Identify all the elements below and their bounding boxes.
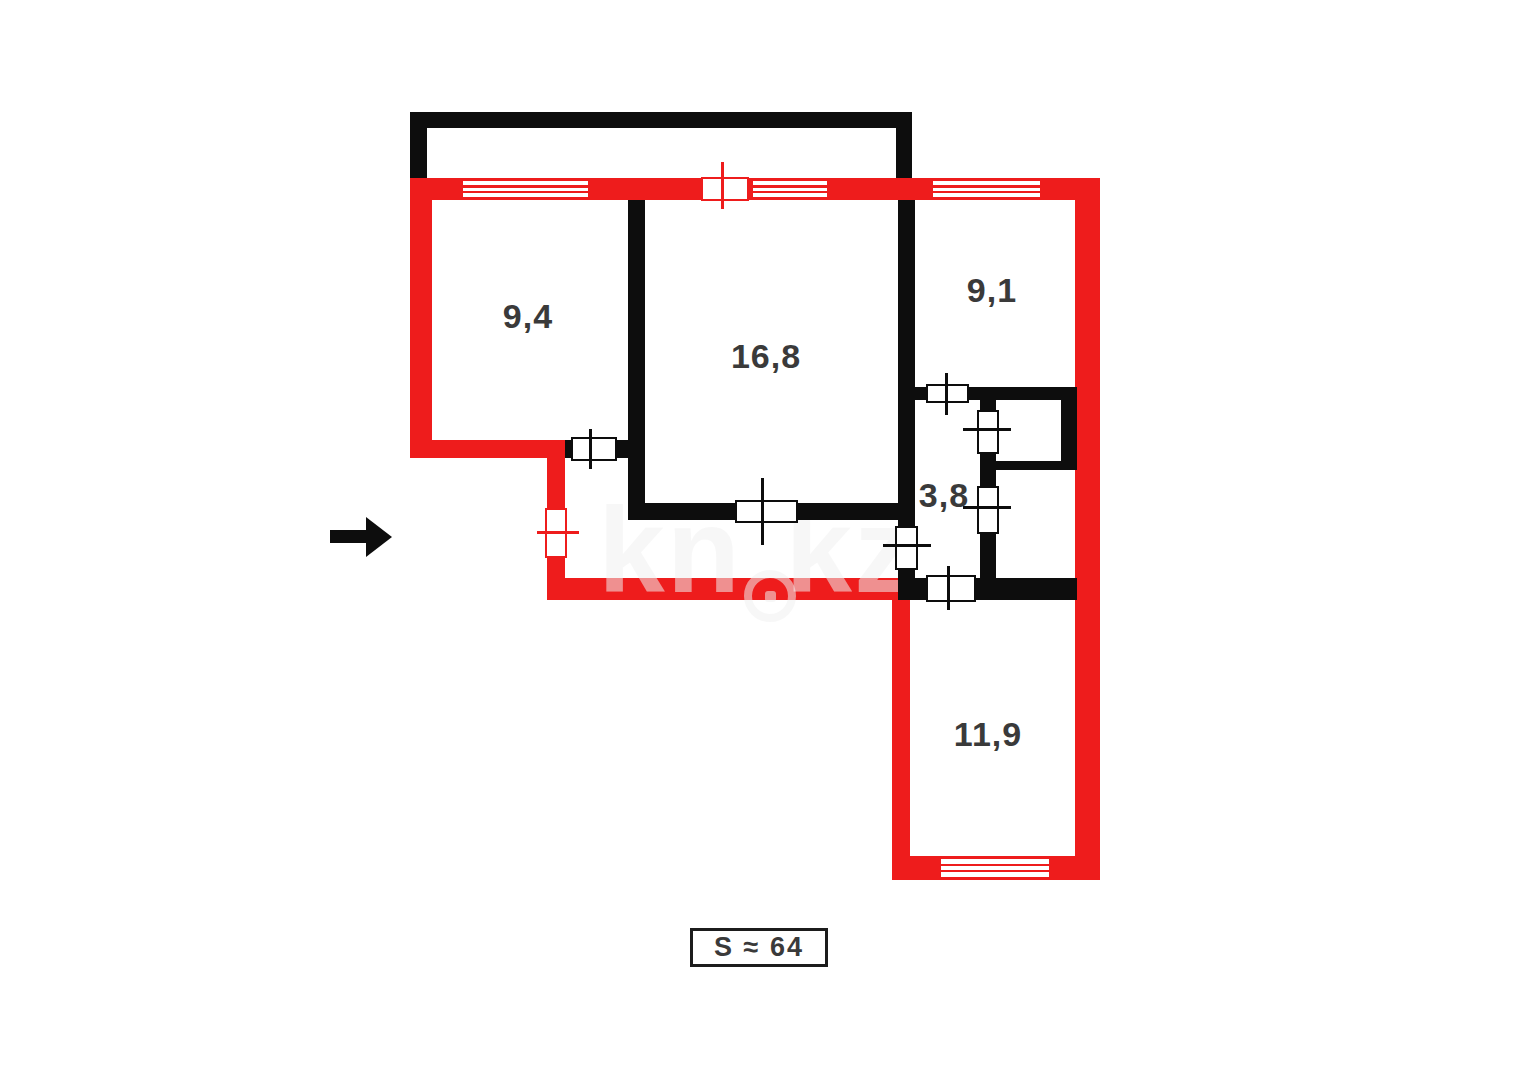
room1-door-mark: [589, 429, 592, 469]
corridor-door-mark: [883, 544, 931, 547]
window-room5: [938, 856, 1052, 880]
balcony-wall-left: [410, 112, 427, 178]
balcony-door-mark: [721, 162, 724, 209]
corridor-door-opening: [895, 526, 918, 570]
living-door-opening: [735, 500, 798, 523]
balcony-wall-top: [410, 112, 912, 128]
room5-door-opening: [926, 575, 976, 602]
wall-toilet-bottom: [980, 461, 1077, 470]
room5-door-mark: [947, 566, 950, 610]
wall-room3-bottom: [898, 387, 1077, 400]
balcony-wall-right: [896, 112, 912, 178]
toilet-door-opening: [977, 410, 999, 454]
total-area-badge: S ≈ 64: [690, 928, 828, 967]
toilet-door-mark: [963, 428, 1011, 431]
entrance-door-mark: [537, 531, 579, 534]
room1-door-opening: [571, 437, 617, 461]
wall-room1-living: [628, 200, 645, 520]
exterior-wall-room5-left: [892, 578, 910, 880]
room-label-16-8: 16,8: [711, 336, 821, 376]
balcony-door-opening: [701, 177, 749, 201]
exterior-wall-right: [1075, 178, 1100, 880]
exterior-wall-room1-bottom: [410, 440, 565, 458]
living-door-mark: [761, 478, 764, 545]
entrance-arrow-head-icon: [366, 517, 392, 557]
total-area-label: S ≈ 64: [714, 932, 804, 963]
room-label-3-8: 3,8: [889, 475, 999, 515]
floor-plan: kn kz 9,4 16,8 9,1 3,8 11,9 S ≈ 64: [0, 0, 1516, 1080]
window-room3: [930, 178, 1043, 200]
window-living: [750, 178, 830, 200]
room-label-11-9: 11,9: [933, 714, 1043, 754]
wall-toilet-right: [1061, 400, 1077, 470]
room3-door-mark: [945, 373, 948, 415]
exterior-wall-left: [410, 200, 432, 458]
window-room1: [460, 178, 591, 200]
room-label-9-4: 9,4: [473, 296, 583, 336]
room-label-9-1: 9,1: [937, 270, 1047, 310]
